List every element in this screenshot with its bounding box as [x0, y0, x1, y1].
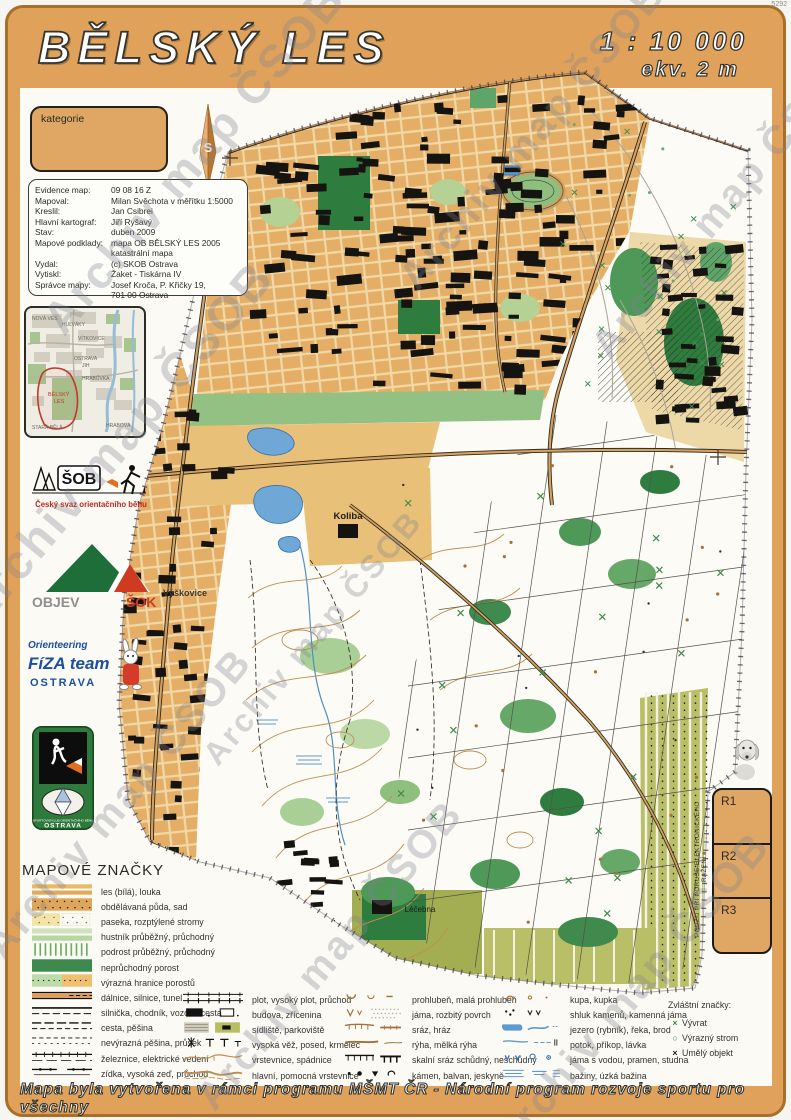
metadata-value: mapa OB BĚLSKÝ LES 2005: [111, 238, 241, 249]
special-legend-label: Výrazný strom: [682, 1033, 738, 1043]
legend-item-label: les (bílá), louka: [101, 887, 161, 897]
metadata-value: duben 2009: [111, 227, 241, 238]
csob-caption: Český svaz orientačního běhu: [26, 500, 156, 509]
inset-place-label: HRABŮVKA: [82, 375, 110, 382]
inset-place-label: HULVÁKY: [62, 321, 86, 328]
legend-column-4: kupa, kupkashluk kamenů, kamenná jámajez…: [501, 992, 688, 1083]
metadata-row: Kreslil:Jan Csibrei: [35, 206, 241, 217]
legend-item-label: sídliště, parkoviště: [252, 1025, 324, 1035]
legend-item-label: bažiny, úzká bažina: [570, 1071, 647, 1081]
csob-acronym: ŠOB: [62, 469, 97, 488]
legend-item-label: výrazná hranice porostů: [101, 978, 195, 988]
special-legend-label: Umělý objekt: [682, 1048, 733, 1058]
metadata-row: Vydal:(c) SKOB Ostrava: [35, 259, 241, 270]
fiza-logo: Orienteering FíZA team OSTRAVA: [26, 636, 156, 713]
reserve-punch-box: R2: [714, 845, 770, 900]
inset-place-label: LES: [54, 399, 65, 405]
metadata-label: Stav:: [35, 227, 111, 238]
metadata-row: Mapové podklady:mapa OB BĚLSKÝ LES 2005: [35, 238, 241, 249]
special-legend-title: Zvláštní značky:: [668, 1000, 738, 1010]
scanned-map-page: Koliba Léčebna Výškovice S: [0, 0, 791, 1120]
metadata-label: Správce mapy:: [35, 280, 111, 291]
fiza-line2: FíZA team: [28, 654, 110, 673]
legend-item-label: paseka, rozptýlené stromy: [101, 917, 204, 927]
metadata-row: Mapoval:Milan Svěchota v měřítku 1:5000: [35, 196, 241, 207]
objev-text: OBJEV: [32, 594, 80, 610]
corner-note: 5292: [771, 1, 787, 8]
runner-icon: [121, 471, 140, 494]
metadata-row: Správce mapy:Josef Kroča, P. Křičky 19,: [35, 280, 241, 291]
inset-place-label: NOVÁ VES: [32, 315, 58, 322]
map-scale: 1 : 10 000: [600, 26, 747, 57]
fiza-line1: Orienteering: [28, 640, 87, 651]
inset-place-label: OSTRAVA: [74, 356, 98, 362]
legend-item-label: cesta, pěšina: [101, 1023, 153, 1033]
skob-logo: SPORTOVNÍ KLUB ORIENTAČNÍHO BĚHU OSTRAVA: [32, 726, 94, 835]
special-legend-item: ×Vývrat: [668, 1015, 738, 1030]
inset-place-label: HRABOVÁ: [106, 422, 131, 429]
legend-item-label: jezero (rybník), řeka, brod: [570, 1025, 671, 1035]
legend-item-label: hustník průběžný, průchodný: [101, 932, 214, 942]
metadata-row: Vytiskl:Žaket - Tiskárna IV: [35, 269, 241, 280]
special-legend-label: Vývrat: [682, 1018, 707, 1028]
legend-item-label: jáma, rozbitý povrch: [412, 1010, 491, 1020]
metadata-value: Josef Kroča, P. Křičky 19,: [111, 280, 241, 291]
metadata-label: Hlavní kartograf:: [35, 217, 111, 228]
objev-sok-logo: OBJEV ŠOK: [30, 540, 164, 619]
reserve-punch-box: R1: [714, 790, 770, 845]
punching-note-vertical: POUŽIJ PŘI PORUŠE ELEKTRONICKÉHO RAŽENÍ: [694, 788, 704, 950]
metadata-label: [35, 248, 111, 259]
legend-item-label: plot, vysoký plot, průchod: [252, 995, 351, 1005]
metadata-value: 09 08 16 Z: [111, 185, 241, 196]
legend-item-label: neprůchodný porost: [101, 963, 179, 973]
fiza-line3: OSTRAVA: [30, 677, 96, 689]
inset-place-label: BĚLSKÝ: [48, 390, 70, 398]
metadata-label: Vytiskl:: [35, 269, 111, 280]
reserve-punch-boxes: R1R2R3: [712, 788, 772, 954]
kategorie-box: kategorie: [30, 106, 168, 172]
csob-logo: ŠOB: [28, 460, 154, 505]
special-legend-marker-icon: ×: [668, 1018, 682, 1028]
metadata-label: Mapové podklady:: [35, 238, 111, 249]
metadata-value: (c) SKOB Ostrava: [111, 259, 241, 270]
legend-item-label: obdělávaná půda, sad: [101, 902, 188, 912]
legend-item-label: kupa, kupka: [570, 995, 617, 1005]
footer-band: Mapa byla vytvořena v rámci programu MŠM…: [20, 1086, 772, 1112]
special-legend-marker-icon: ×: [668, 1048, 682, 1058]
legend-title: MAPOVÉ ZNAČKY: [22, 862, 164, 879]
legend-special-column: Zvláštní značky: ×Vývrat○Výrazný strom×U…: [668, 1000, 738, 1060]
map-metadata-box: Evidence map:09 08 16 ZMapoval:Milan Svě…: [28, 179, 248, 296]
metadata-row: Evidence map:09 08 16 Z: [35, 185, 241, 196]
legend-item-label: potok, příkop, lávka: [570, 1040, 646, 1050]
map-equidistance: ekv. 2 m: [641, 58, 739, 82]
page-title: BĚLSKÝ LES: [38, 22, 391, 74]
kategorie-label: kategorie: [41, 113, 84, 125]
legend-item-label: podrost průběžný, průchodný: [101, 947, 215, 957]
location-inset-map: NOVÁ VESHULVÁKYVÍTKOVICEOSTRAVAJIHHRABŮV…: [24, 306, 146, 438]
tree-icon: [34, 468, 55, 490]
special-legend-item: ×Umělý objekt: [668, 1045, 738, 1060]
footer-text: Mapa byla vytvořena v rámci programu MŠM…: [20, 1081, 772, 1117]
inset-place-label: JIH: [82, 363, 90, 369]
metadata-value: Jiří Ryšavý: [111, 217, 241, 228]
legend-item-label: kámen, balvan, jeskyně: [412, 1071, 504, 1081]
metadata-label: Vydal:: [35, 259, 111, 270]
metadata-label: [35, 290, 111, 301]
metadata-row: Stav:duben 2009: [35, 227, 241, 238]
special-legend-marker-icon: ○: [668, 1033, 682, 1043]
legend-item-label: dálnice, silnice, tunel: [101, 993, 182, 1003]
metadata-value: Žaket - Tiskárna IV: [111, 269, 241, 280]
metadata-label: Kreslil:: [35, 206, 111, 217]
metadata-value: 701 00 Ostrava: [111, 290, 241, 301]
inset-place-label: VÍTKOVICE: [78, 335, 105, 342]
legend-item-label: sráz, hráz: [412, 1025, 451, 1035]
metadata-value: Jan Csibrei: [111, 206, 241, 217]
metadata-row: katastrální mapa: [35, 248, 241, 259]
reserve-punch-box: R3: [714, 899, 770, 952]
legend-item-label: vrstevnice, spádnice: [252, 1055, 332, 1065]
metadata-row: Hlavní kartograf:Jiří Ryšavý: [35, 217, 241, 228]
legend-column-2: plot, vysoký plot, průchodbudova, zřícen…: [183, 992, 360, 1083]
skob-city: OSTRAVA: [44, 823, 82, 830]
inset-place-label: STARÁ BĚLÁ: [32, 423, 63, 431]
sok-text: ŠOK: [126, 593, 156, 610]
metadata-label: Evidence map:: [35, 185, 111, 196]
legend-item-label: budova, zřícenina: [252, 1010, 321, 1020]
metadata-row: 701 00 Ostrava: [35, 290, 241, 301]
metadata-label: Mapoval:: [35, 196, 111, 207]
rabbit-mascot-icon: [120, 638, 142, 690]
metadata-value: katastrální mapa: [111, 248, 241, 259]
legend-item-label: rýha, mělká rýha: [412, 1040, 477, 1050]
special-legend-item: ○Výrazný strom: [668, 1030, 738, 1045]
metadata-value: Milan Svěchota v měřítku 1:5000: [111, 196, 241, 207]
